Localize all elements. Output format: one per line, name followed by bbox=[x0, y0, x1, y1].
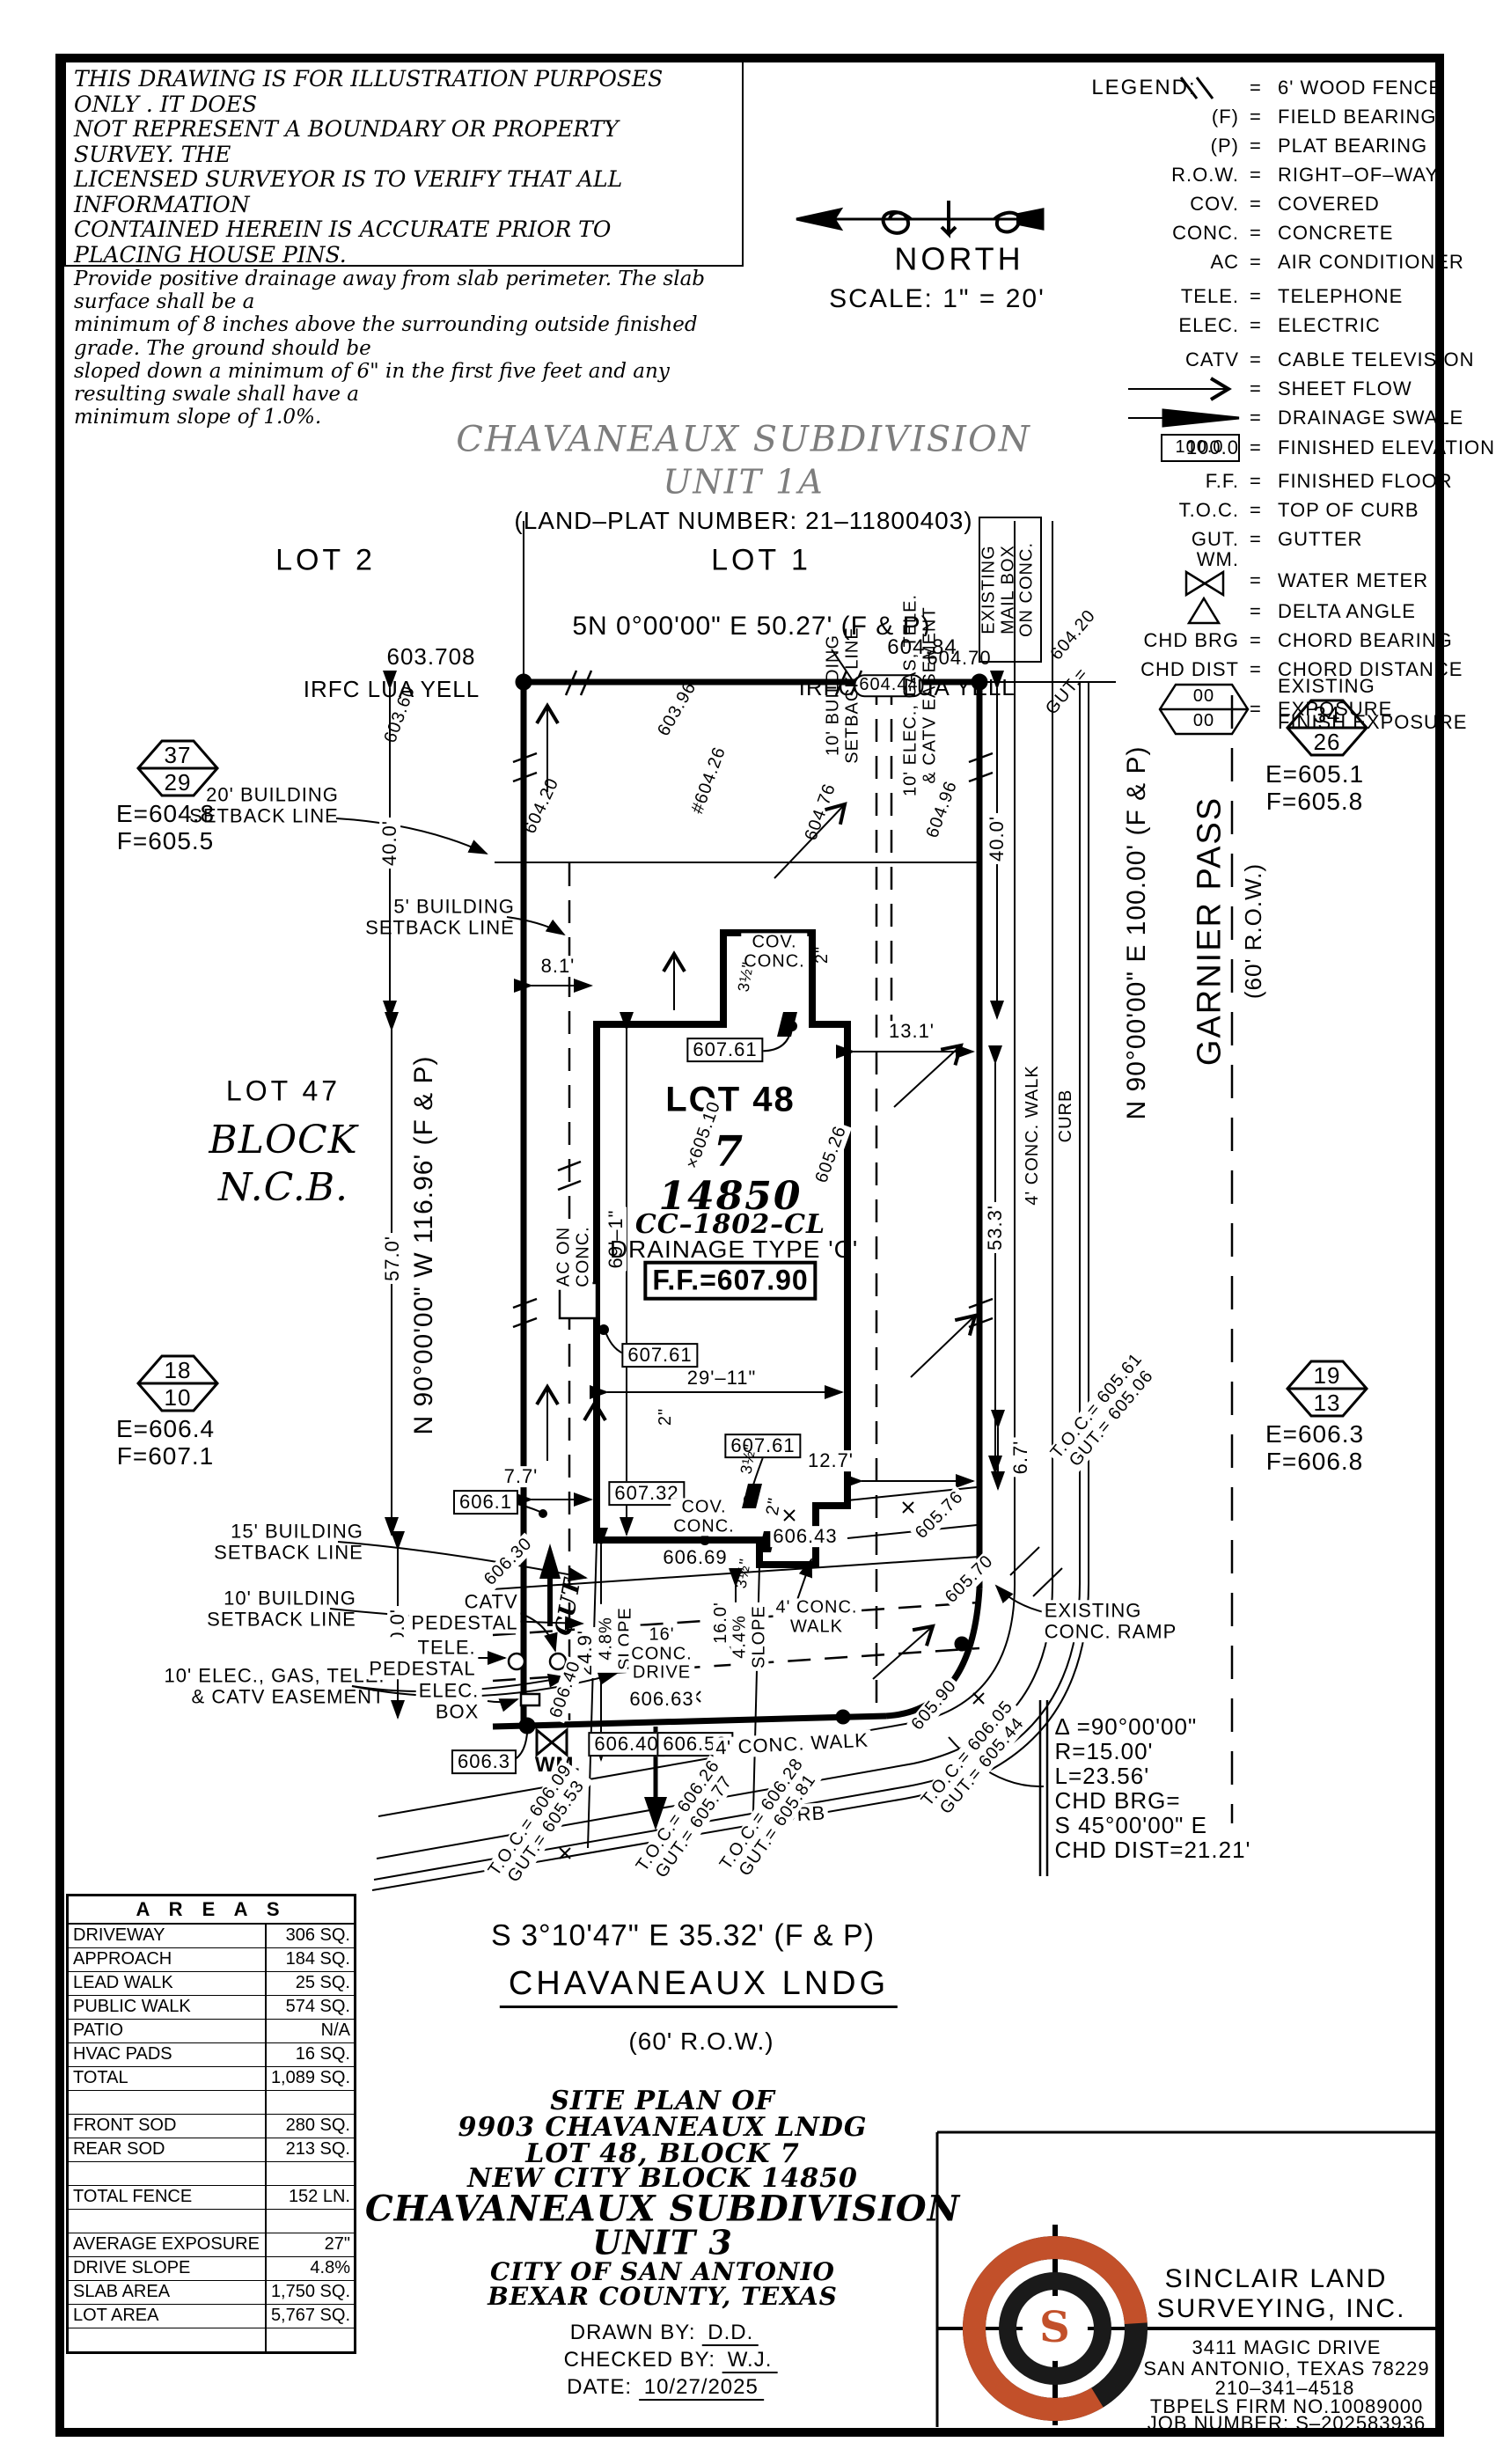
legend-title: LEGEND: bbox=[1091, 77, 1196, 99]
curve-chd-brg: S 45°00'00" E bbox=[1055, 1813, 1207, 1837]
dim-12-7: 12.7' bbox=[805, 1450, 856, 1471]
cov-conc-bottom: COV. CONC. bbox=[671, 1498, 737, 1536]
setback-5-line: 5' BUILDING bbox=[393, 896, 514, 917]
block-label: BLOCK bbox=[209, 1119, 357, 1162]
setback-10-right-line: SETBACK LINE bbox=[843, 627, 862, 763]
setback-15-label: 15' BUILDING SETBACK LINE bbox=[214, 1521, 363, 1563]
date-label: DATE: bbox=[567, 2375, 632, 2399]
area-value: 16 SQ. FT. bbox=[267, 2043, 354, 2066]
legend-desc: FINISHED ELEVATION bbox=[1278, 436, 1495, 459]
legend-desc: AIR CONDITIONER bbox=[1278, 251, 1464, 274]
legend-eq: = bbox=[1250, 251, 1261, 274]
legend-eq: = bbox=[1250, 285, 1261, 308]
hex19: 19 bbox=[1314, 1363, 1341, 1388]
date-value: 10/27/2025 bbox=[639, 2375, 764, 2401]
tele-pedestal-label: TELE. PEDESTAL bbox=[366, 1637, 478, 1679]
drive-label: 16' CONC. DRIVE bbox=[628, 1626, 694, 1683]
hex13: 13 bbox=[1314, 1390, 1341, 1415]
area-label: DRIVE SLOPE bbox=[69, 2257, 267, 2280]
legend-eq: = bbox=[1250, 77, 1261, 99]
elec-box-label: ELEC. BOX bbox=[416, 1680, 482, 1722]
area-label bbox=[69, 2091, 267, 2114]
legend-eq: = bbox=[1250, 499, 1261, 522]
easement-bottom-label: 10' ELEC., GAS, TELE. & CATV EASEMENT bbox=[164, 1665, 385, 1707]
legend-eq: = bbox=[1250, 348, 1261, 371]
area-label: PATIO bbox=[69, 2020, 267, 2042]
legend-elev-value: 100.0 bbox=[1175, 438, 1223, 458]
table-row: HVAC PADS16 SQ. FT. bbox=[69, 2043, 354, 2067]
curve-chd-dist: CHD DIST=21.21' bbox=[1055, 1837, 1251, 1862]
tele-line: TELE. bbox=[418, 1637, 476, 1658]
lot48-label: LOT 48 bbox=[665, 1081, 796, 1118]
mailbox-line: MAIL BOX bbox=[999, 545, 1018, 634]
irfc-left: IRFC LUA YELL bbox=[304, 677, 480, 701]
area-value bbox=[267, 2091, 354, 2114]
area-value bbox=[267, 2328, 354, 2351]
table-row: PATION/A bbox=[69, 2020, 354, 2043]
dim-57-0: 57.0' bbox=[382, 1233, 403, 1284]
setback-5-label: 5' BUILDING SETBACK LINE bbox=[365, 896, 515, 938]
legend-desc: FINISH EXPOSURE bbox=[1278, 711, 1467, 734]
slope-44-label: 4.4% SLOPE bbox=[730, 1602, 768, 1671]
elev-60761-a: 607.61 bbox=[686, 1038, 763, 1062]
hex34-e: E=605.1 bbox=[1265, 761, 1364, 788]
elec-line: ELEC. bbox=[419, 1680, 480, 1701]
checked-by-label: CHECKED BY: bbox=[564, 2348, 715, 2372]
lot47-label: LOT 47 bbox=[226, 1076, 341, 1107]
table-row bbox=[69, 2162, 354, 2186]
scale-label: SCALE: 1" = 20' bbox=[829, 285, 1045, 313]
cov-line: COV. bbox=[681, 1498, 726, 1517]
garnier-row-label: (60' R.O.W.) bbox=[1241, 863, 1265, 999]
plat-number: (LAND–PLAT NUMBER: 21–11800403) bbox=[514, 508, 972, 534]
inch2-top: 2" bbox=[813, 946, 832, 964]
area-value: 1,750 SQ. FT. bbox=[267, 2281, 354, 2304]
table-row: TOTAL FENCE152 LN. FT. bbox=[69, 2186, 354, 2210]
legend-eq: = bbox=[1250, 436, 1261, 459]
drawn-by-row: DRAWN BY: D.D. bbox=[570, 2321, 759, 2344]
legend-abbr: (F) bbox=[1107, 106, 1239, 128]
site-plan-sheet: THIS DRAWING IS FOR ILLUSTRATION PURPOSE… bbox=[0, 0, 1496, 2464]
ac-line: CONC. bbox=[574, 1226, 593, 1287]
area-value: N/A bbox=[267, 2020, 354, 2042]
surveyor-name2: SURVEYING, INC. bbox=[1157, 2295, 1406, 2323]
setback-10-bottom-label: 10' BUILDING SETBACK LINE bbox=[207, 1588, 356, 1630]
elev-6061: 606.1 bbox=[453, 1490, 518, 1514]
area-label: LOT AREA bbox=[69, 2305, 267, 2328]
cov-line: CONC. bbox=[673, 1517, 734, 1536]
table-row bbox=[69, 2210, 354, 2233]
ncb-label: N.C.B. bbox=[218, 1167, 348, 1209]
legend-desc: 6' WOOD FENCE bbox=[1278, 77, 1442, 99]
legend-desc: RIGHT–OF–WAY bbox=[1278, 164, 1439, 187]
table-row bbox=[69, 2328, 354, 2351]
curve-delta: Δ =90°00'00" bbox=[1055, 1714, 1198, 1739]
walk-line: 4' CONC. bbox=[776, 1598, 858, 1617]
table-row: FRONT SOD280 SQ. YD. bbox=[69, 2115, 354, 2138]
legend-abbr: CONC. bbox=[1107, 222, 1239, 245]
garnier-pass-label: GARNIER PASS bbox=[1192, 796, 1228, 1066]
area-label: TOTAL FENCE bbox=[69, 2186, 267, 2209]
legend-abbr: (P) bbox=[1107, 135, 1239, 158]
legend-eq: = bbox=[1250, 470, 1261, 493]
elev-603708: 603.708 bbox=[385, 644, 479, 669]
legend-eq: = bbox=[1250, 106, 1261, 128]
lot1-label: LOT 1 bbox=[711, 545, 811, 577]
disclaimer-line: minimum of 8 inches above the surroundin… bbox=[74, 313, 725, 359]
ramp-line: CONC. RAMP bbox=[1045, 1621, 1177, 1642]
curve-data-block: Δ =90°00'00" R=15.00' L=23.56' CHD BRG= … bbox=[1055, 1714, 1251, 1862]
legend-eq: = bbox=[1250, 629, 1261, 652]
hex37: 37 bbox=[165, 743, 192, 767]
curve-radius: R=15.00' bbox=[1055, 1739, 1154, 1764]
lot48-number: 7 bbox=[714, 1130, 744, 1176]
disclaimer-line: THIS DRAWING IS FOR ILLUSTRATION PURPOSE… bbox=[74, 67, 725, 117]
hex18: 18 bbox=[165, 1358, 192, 1382]
legend-desc: DELTA ANGLE bbox=[1278, 600, 1416, 623]
elec-line: BOX bbox=[436, 1701, 479, 1722]
walk-line: WALK bbox=[790, 1617, 843, 1637]
bearing-north: 5N 0°00'00" E 50.27' (F & P) bbox=[569, 612, 933, 641]
inch2-mid: 2" bbox=[764, 1496, 786, 1517]
table-row: APPROACH184 SQ. FT. bbox=[69, 1948, 354, 1972]
legend-abbr: T.O.C. bbox=[1107, 499, 1239, 522]
slope-line: SLOPE bbox=[750, 1605, 769, 1668]
dim-40-left: 40.0' bbox=[379, 818, 400, 869]
legend-eq: = bbox=[1250, 164, 1261, 187]
legend-eq: = bbox=[1250, 135, 1261, 158]
legend-desc: PLAT BEARING bbox=[1278, 135, 1427, 158]
area-label: SLAB AREA bbox=[69, 2281, 267, 2304]
legend-abbr: CATV bbox=[1107, 348, 1239, 371]
logo-s-icon: S bbox=[1039, 2306, 1071, 2351]
area-label bbox=[69, 2162, 267, 2185]
checked-by-value: W.J. bbox=[722, 2348, 778, 2373]
hex29: 29 bbox=[165, 770, 192, 795]
subdivision-title: CHAVANEAUX SUBDIVISION bbox=[456, 421, 1031, 458]
setback-10-bottom-line: SETBACK LINE bbox=[207, 1609, 356, 1630]
table-row: TOTAL1,089 SQ. FT. bbox=[69, 2067, 354, 2091]
legend-abbr: TELE. bbox=[1107, 285, 1239, 308]
curve-length: L=23.56' bbox=[1055, 1764, 1150, 1788]
area-value bbox=[267, 2162, 354, 2185]
drawn-by-label: DRAWN BY: bbox=[570, 2321, 696, 2344]
elev-60663: 606.63 bbox=[627, 1689, 696, 1710]
legend-abbr: CHD BRG bbox=[1107, 629, 1239, 652]
table-row: LOT AREA5,767 SQ. FT. bbox=[69, 2305, 354, 2328]
area-label bbox=[69, 2328, 267, 2351]
disclaimer-line: NOT REPRESENT A BOUNDARY OR PROPERTY SUR… bbox=[74, 117, 725, 167]
legend-desc: TELEPHONE bbox=[1278, 285, 1403, 308]
legend-desc: DRAINAGE SWALE bbox=[1278, 407, 1463, 429]
titleblock-line8: BEXAR COUNTY, TEXAS bbox=[488, 2284, 838, 2310]
legend-eq: = bbox=[1250, 528, 1261, 551]
elev-60643: 606.43 bbox=[770, 1526, 840, 1547]
table-row: DRIVE SLOPE4.8% bbox=[69, 2257, 354, 2281]
existing-ramp-label: EXISTING CONC. RAMP bbox=[1042, 1600, 1180, 1642]
table-row: REAR SOD213 SQ. YD. bbox=[69, 2138, 354, 2162]
hex19-e: E=606.3 bbox=[1265, 1421, 1364, 1448]
dim-13-1: 13.1' bbox=[886, 1021, 937, 1042]
bearing-west: N 90°00'00" W 116.96' (F & P) bbox=[410, 1052, 438, 1437]
subdivision-unit: UNIT 1A bbox=[663, 464, 824, 500]
setback-10-right-line: 10' BUILDING bbox=[824, 634, 843, 756]
checked-by-row: CHECKED BY: W.J. bbox=[564, 2349, 778, 2372]
ramp-line: EXISTING bbox=[1045, 1600, 1142, 1621]
easement-right-line: & CATV EASEMENT bbox=[920, 606, 940, 783]
area-value: 306 SQ. FT. bbox=[267, 1925, 354, 1947]
elev-60761-c: 607.61 bbox=[724, 1434, 801, 1458]
drawn-by-value: D.D. bbox=[702, 2321, 759, 2346]
area-value: 152 LN. FT. bbox=[267, 2186, 354, 2209]
legend-eq: = bbox=[1250, 658, 1261, 681]
disclaimer-line: CONTAINED HEREIN IS ACCURATE PRIOR TO PL… bbox=[74, 217, 725, 268]
mailbox-label: EXISTING MAIL BOX ON CONC. bbox=[980, 542, 1038, 637]
hex10: 10 bbox=[165, 1385, 192, 1410]
area-value: 574 SQ. FT. bbox=[267, 1996, 354, 2019]
legend-desc: WATER METER bbox=[1278, 569, 1428, 592]
legend-eq: = bbox=[1250, 600, 1261, 623]
mailbox-line: ON CONC. bbox=[1018, 542, 1038, 637]
curve-chd-brg-label: CHD BRG= bbox=[1055, 1788, 1181, 1813]
area-label: APPROACH bbox=[69, 1948, 267, 1971]
disclaimer-text: THIS DRAWING IS FOR ILLUSTRATION PURPOSE… bbox=[74, 67, 725, 429]
area-label: FRONT SOD bbox=[69, 2115, 267, 2138]
slope-line: 4.8% bbox=[597, 1617, 616, 1661]
hex34: 34 bbox=[1314, 702, 1341, 727]
street-name: CHAVANEAUX LNDG bbox=[500, 1966, 898, 2008]
areas-title: A R E A S bbox=[69, 1896, 354, 1925]
dim-7-7: 7.7' bbox=[502, 1466, 541, 1487]
legend-abbr: CHD DIST bbox=[1107, 658, 1239, 681]
drive-line: DRIVE bbox=[633, 1664, 691, 1683]
legend-desc: CHORD BEARING bbox=[1278, 629, 1453, 652]
legend-desc: CABLE TELEVISION bbox=[1278, 348, 1474, 371]
walk-right-label: 4' CONC. WALK bbox=[1023, 1062, 1043, 1207]
street-row: (60' R.O.W.) bbox=[628, 2028, 774, 2055]
cov-line: COV. bbox=[752, 933, 796, 952]
table-row: AVERAGE EXPOSURE27" bbox=[69, 2233, 354, 2257]
area-value: 27" bbox=[267, 2233, 354, 2256]
setback-10-bottom-line: 10' BUILDING bbox=[224, 1588, 356, 1609]
legend-abbr-wm: WM. bbox=[1107, 548, 1264, 571]
easement-bottom-line: 10' ELEC., GAS, TELE. bbox=[164, 1665, 385, 1686]
elev-60669: 606.69 bbox=[660, 1547, 730, 1568]
hex34-f: F=605.8 bbox=[1266, 788, 1364, 815]
legend-eq: = bbox=[1250, 407, 1261, 429]
drainage-type: DRAINAGE TYPE 'C' bbox=[610, 1236, 858, 1263]
area-label: AVERAGE EXPOSURE bbox=[69, 2233, 267, 2256]
slope-line: 4.4% bbox=[730, 1615, 750, 1659]
easement-right-line: 10' ELEC., GAS, TELE. bbox=[901, 594, 920, 796]
lot2-label: LOT 2 bbox=[275, 545, 376, 577]
finished-floor: F.F.=607.90 bbox=[643, 1261, 817, 1301]
catv-pedestal-label: CATV PEDESTAL bbox=[408, 1591, 520, 1633]
dim-6-7: 6.7' bbox=[1010, 1438, 1031, 1478]
areas-table: A R E A S DRIVEWAY306 SQ. FT. APPROACH18… bbox=[66, 1894, 356, 2354]
legend-desc: ELECTRIC bbox=[1278, 314, 1381, 337]
ac-on-conc-label: AC ON CONC. bbox=[554, 1223, 592, 1289]
surveyor-name1: SINCLAIR LAND bbox=[1165, 2265, 1388, 2293]
hex18-f: F=607.1 bbox=[117, 1443, 215, 1470]
legend-abbr: COV. bbox=[1107, 193, 1239, 216]
north-arrow-ornament bbox=[796, 201, 1043, 234]
elev-60640-box: 606.40 bbox=[588, 1732, 664, 1756]
area-value: 213 SQ. YD. bbox=[267, 2138, 354, 2161]
dim-16-0: 16.0' bbox=[712, 1599, 731, 1646]
dim-29-11: 29'–11" bbox=[685, 1368, 759, 1389]
inch2-arrow: 2" bbox=[656, 1408, 676, 1426]
dim-8-1: 8.1' bbox=[539, 956, 578, 977]
table-row: PUBLIC WALK574 SQ. FT. bbox=[69, 1996, 354, 2020]
area-label: HVAC PADS bbox=[69, 2043, 267, 2066]
legend-eq: = bbox=[1250, 698, 1261, 721]
legend-desc: FIELD BEARING bbox=[1278, 106, 1436, 128]
setback-15-line: SETBACK LINE bbox=[214, 1542, 363, 1563]
mailbox-line: EXISTING bbox=[980, 545, 1000, 634]
area-label bbox=[69, 2210, 267, 2233]
legend-desc: SHEET FLOW bbox=[1278, 378, 1412, 400]
legend-eq: = bbox=[1250, 569, 1261, 592]
setback-5-line: SETBACK LINE bbox=[365, 917, 515, 938]
disclaimer-line: LICENSED SURVEYOR IS TO VERIFY THAT ALL … bbox=[74, 167, 725, 217]
legend-eq: = bbox=[1250, 378, 1261, 400]
date-row: DATE: 10/27/2025 bbox=[567, 2376, 764, 2399]
setback-20-line: 20' BUILDING bbox=[206, 784, 339, 805]
legend-abbr: F.F. bbox=[1107, 470, 1239, 493]
surveyor-job: JOB NUMBER: S–202583936 bbox=[1148, 2413, 1426, 2434]
legend-desc: CONCRETE bbox=[1278, 222, 1393, 245]
legend-desc: TOP OF CURB bbox=[1278, 499, 1419, 522]
area-label: PUBLIC WALK bbox=[69, 1996, 267, 2019]
catv-line: PEDESTAL bbox=[411, 1612, 517, 1633]
dim-53-3: 53.3' bbox=[985, 1202, 1006, 1253]
curb-right-label: CURB bbox=[1057, 1087, 1076, 1146]
area-label: LEAD WALK bbox=[69, 1972, 267, 1995]
elev-6063: 606.3 bbox=[451, 1749, 517, 1774]
legend-abbr: R.O.W. bbox=[1107, 164, 1239, 187]
north-label: NORTH bbox=[894, 243, 1023, 277]
drive-line: CONC. bbox=[631, 1645, 692, 1664]
legend-hex-bot: 00 bbox=[1193, 712, 1214, 731]
bearing-east: N 90°00'00" E 100.00' (F & P) bbox=[1123, 744, 1151, 1123]
hex26: 26 bbox=[1314, 730, 1341, 754]
legend-abbr: AC bbox=[1107, 251, 1239, 274]
walk-upper-label: 4' CONC. WALK bbox=[774, 1598, 861, 1636]
catv-line: CATV bbox=[465, 1591, 518, 1612]
legend-desc: FINISHED FLOOR bbox=[1278, 470, 1453, 493]
legend-abbr: ELEC. bbox=[1107, 314, 1239, 337]
legend-desc: COVERED bbox=[1278, 193, 1380, 216]
setback-10-right-label: 10' BUILDING SETBACK LINE bbox=[824, 627, 862, 763]
table-row: LEAD WALK25 SQ. FT. bbox=[69, 1972, 354, 1996]
legend-desc: GUTTER bbox=[1278, 528, 1362, 551]
area-value: 280 SQ. YD. bbox=[267, 2115, 354, 2138]
titleblock-line6: UNIT 3 bbox=[592, 2224, 733, 2260]
legend-eq: = bbox=[1250, 193, 1261, 216]
legend-hex-top: 00 bbox=[1193, 687, 1214, 707]
legend-eq: = bbox=[1250, 222, 1261, 245]
easement-bottom-line: & CATV EASEMENT bbox=[192, 1686, 385, 1707]
easement-right-label: 10' ELEC., GAS, TELE. & CATV EASEMENT bbox=[901, 594, 939, 796]
disclaimer-line: Provide positive drainage away from slab… bbox=[74, 268, 725, 313]
hex18-e: E=606.4 bbox=[116, 1416, 215, 1442]
area-value: 1,089 SQ. FT. bbox=[267, 2067, 354, 2090]
elev-60761-b: 607.61 bbox=[621, 1343, 698, 1368]
area-value: 4.8% bbox=[267, 2257, 354, 2280]
setback-20-line: SETBACK LINE bbox=[189, 805, 339, 826]
area-value: 5,767 SQ. FT. bbox=[267, 2305, 354, 2328]
area-label: DRIVEWAY bbox=[69, 1925, 267, 1947]
tele-line: PEDESTAL bbox=[369, 1658, 475, 1679]
table-row bbox=[69, 2091, 354, 2115]
hex37-f: F=605.5 bbox=[117, 828, 215, 854]
ac-line: AC ON bbox=[554, 1227, 574, 1287]
setback-20-label: 20' BUILDING SETBACK LINE bbox=[189, 784, 339, 826]
table-row: SLAB AREA1,750 SQ. FT. bbox=[69, 2281, 354, 2305]
table-row: DRIVEWAY306 SQ. FT. bbox=[69, 1925, 354, 1948]
street-bearing: S 3°10'47" E 35.32' (F & P) bbox=[488, 1920, 877, 1953]
legend-eq: = bbox=[1250, 314, 1261, 337]
area-label: TOTAL bbox=[69, 2067, 267, 2090]
area-value: 184 SQ. FT. bbox=[267, 1948, 354, 1971]
dim-40-right: 40.0' bbox=[986, 813, 1008, 864]
area-value bbox=[267, 2210, 354, 2233]
area-label: REAR SOD bbox=[69, 2138, 267, 2161]
surveyor-address: 3411 MAGIC DRIVE bbox=[1192, 2337, 1382, 2358]
disclaimer-line: sloped down a minimum of 6" in the first… bbox=[74, 360, 725, 406]
drive-line: 16' bbox=[649, 1626, 674, 1646]
area-value: 25 SQ. FT. bbox=[267, 1972, 354, 1995]
setback-15-line: 15' BUILDING bbox=[231, 1521, 363, 1542]
hex19-f: F=606.8 bbox=[1266, 1448, 1364, 1475]
